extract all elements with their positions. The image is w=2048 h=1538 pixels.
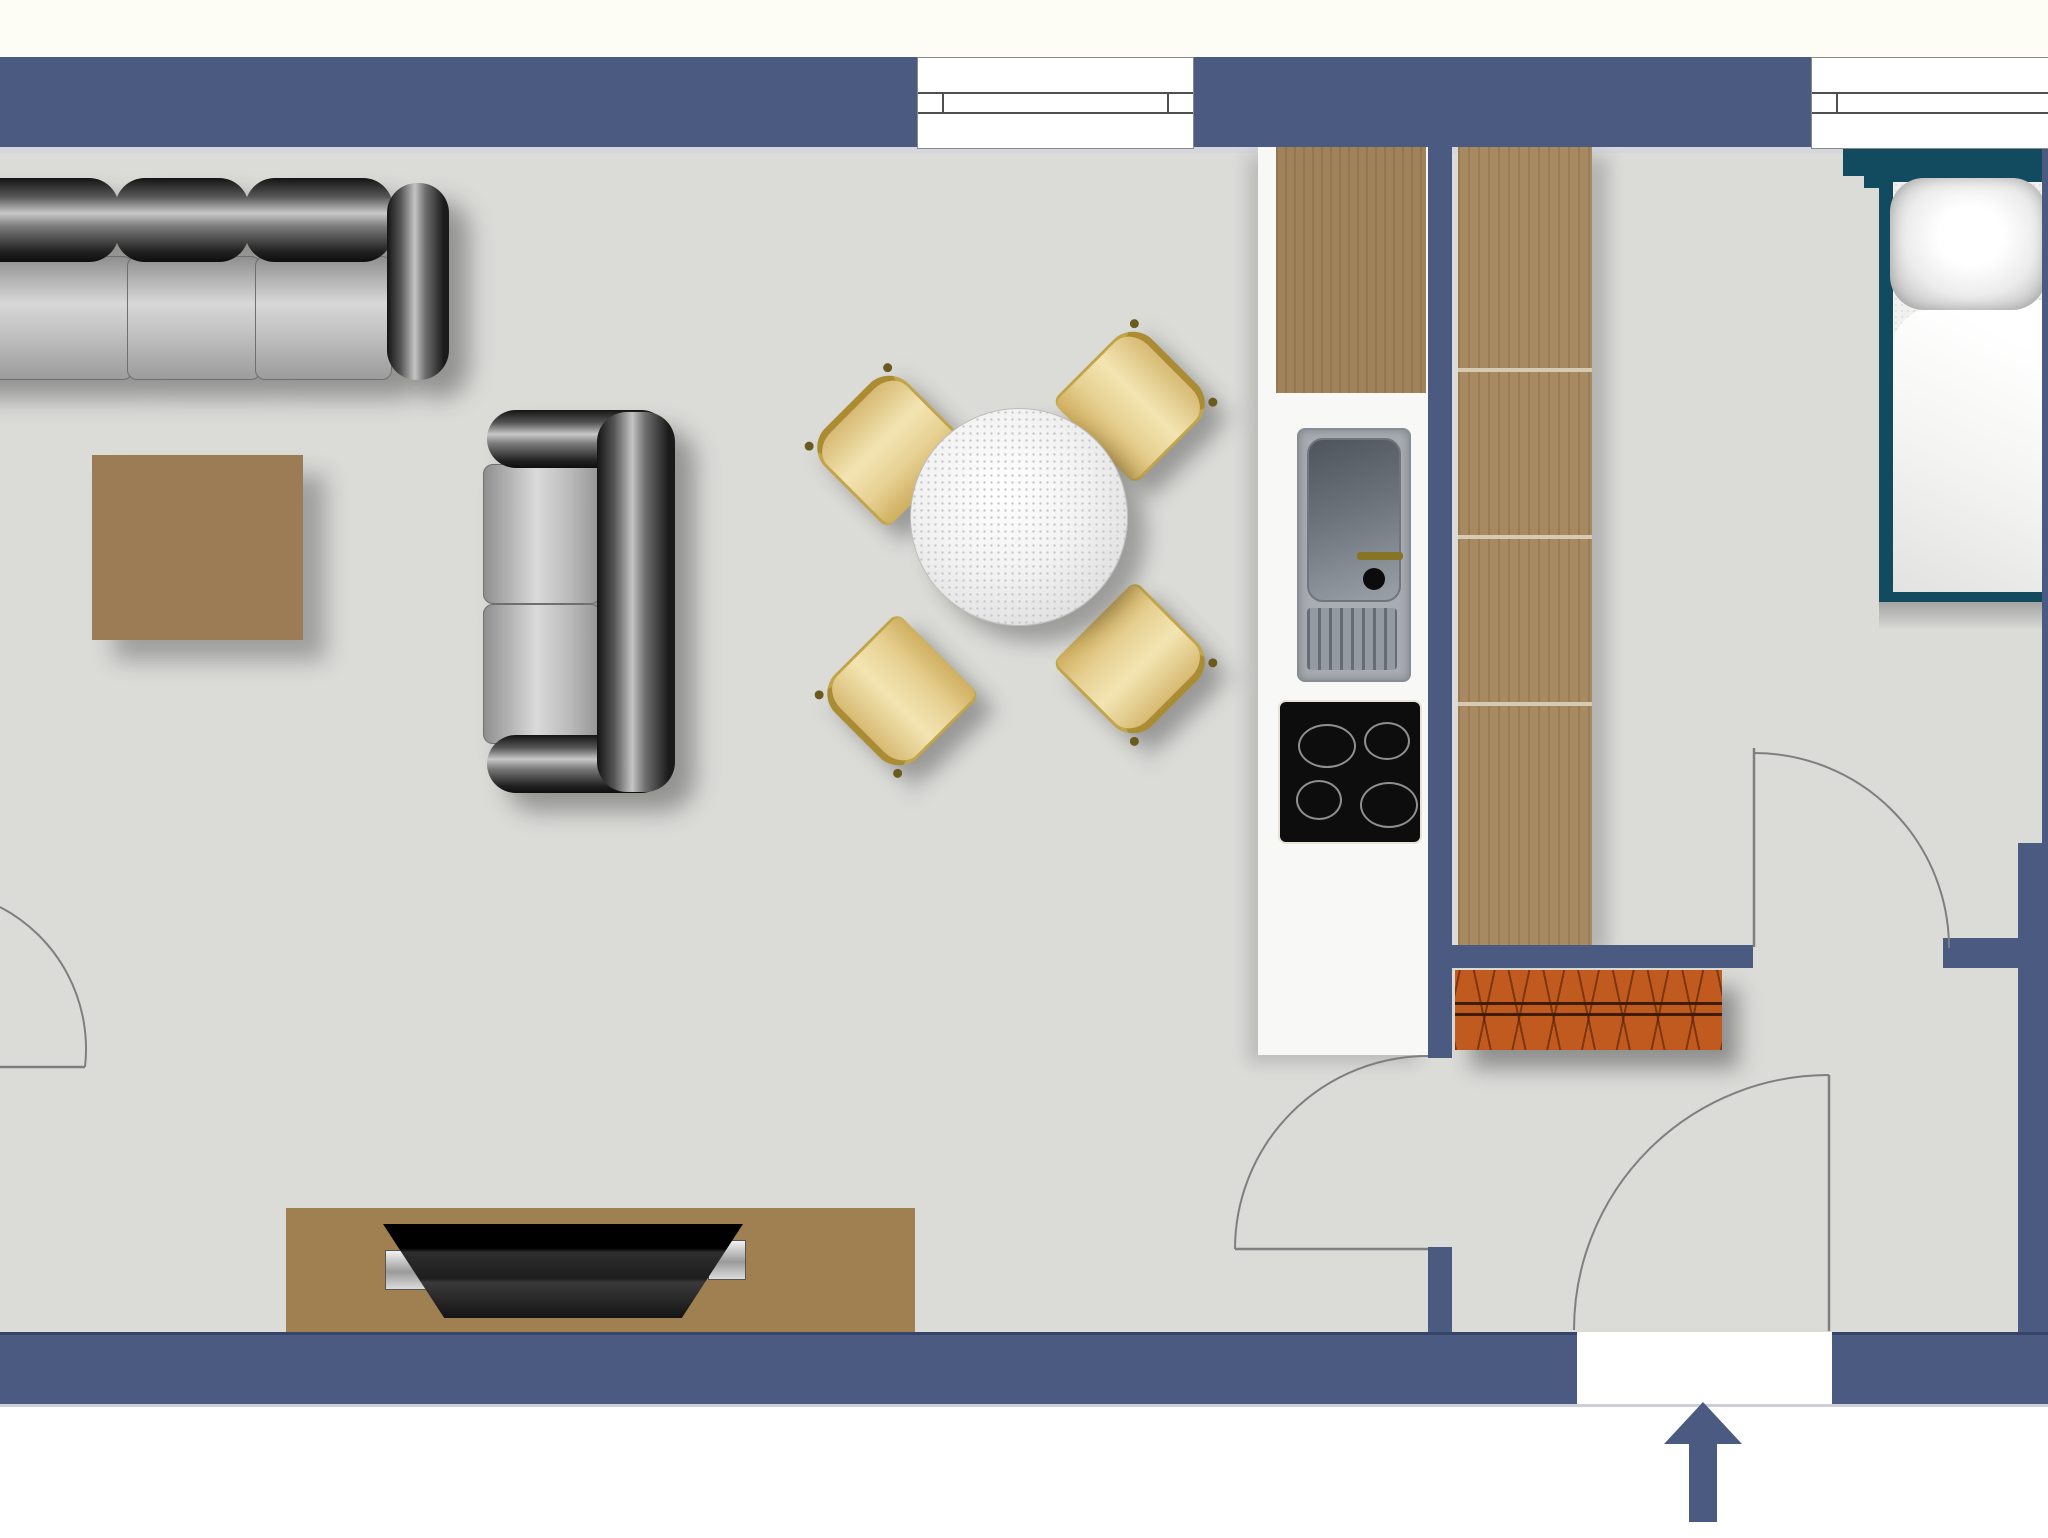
bedroom-door-arc — [1754, 753, 1949, 948]
door-swing-overlay — [0, 0, 2048, 1538]
entry-door-arc — [1574, 1075, 1829, 1330]
kitchen-hall-door-arc — [1235, 1056, 1428, 1249]
floor-plan — [0, 0, 2048, 1538]
left-room-door-arc — [0, 907, 86, 1067]
